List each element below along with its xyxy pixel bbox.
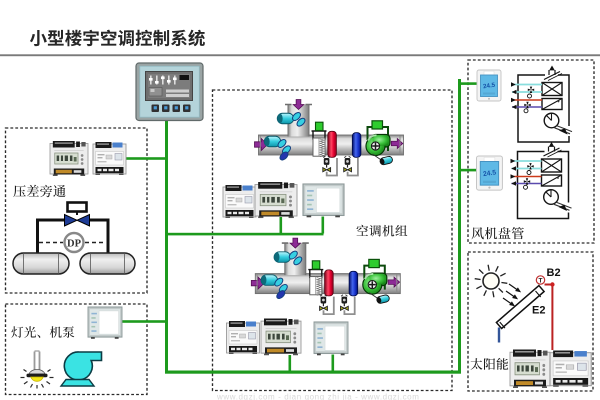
svg-text:E2: E2 (532, 305, 545, 317)
svg-text:T: T (539, 278, 543, 285)
svg-text:DP: DP (67, 238, 82, 249)
svg-text:B2: B2 (547, 267, 561, 279)
svg-text:www.dgzj.com - dian gong zhi j: www.dgzj.com - dian gong zhi jia - www.d… (216, 393, 420, 400)
